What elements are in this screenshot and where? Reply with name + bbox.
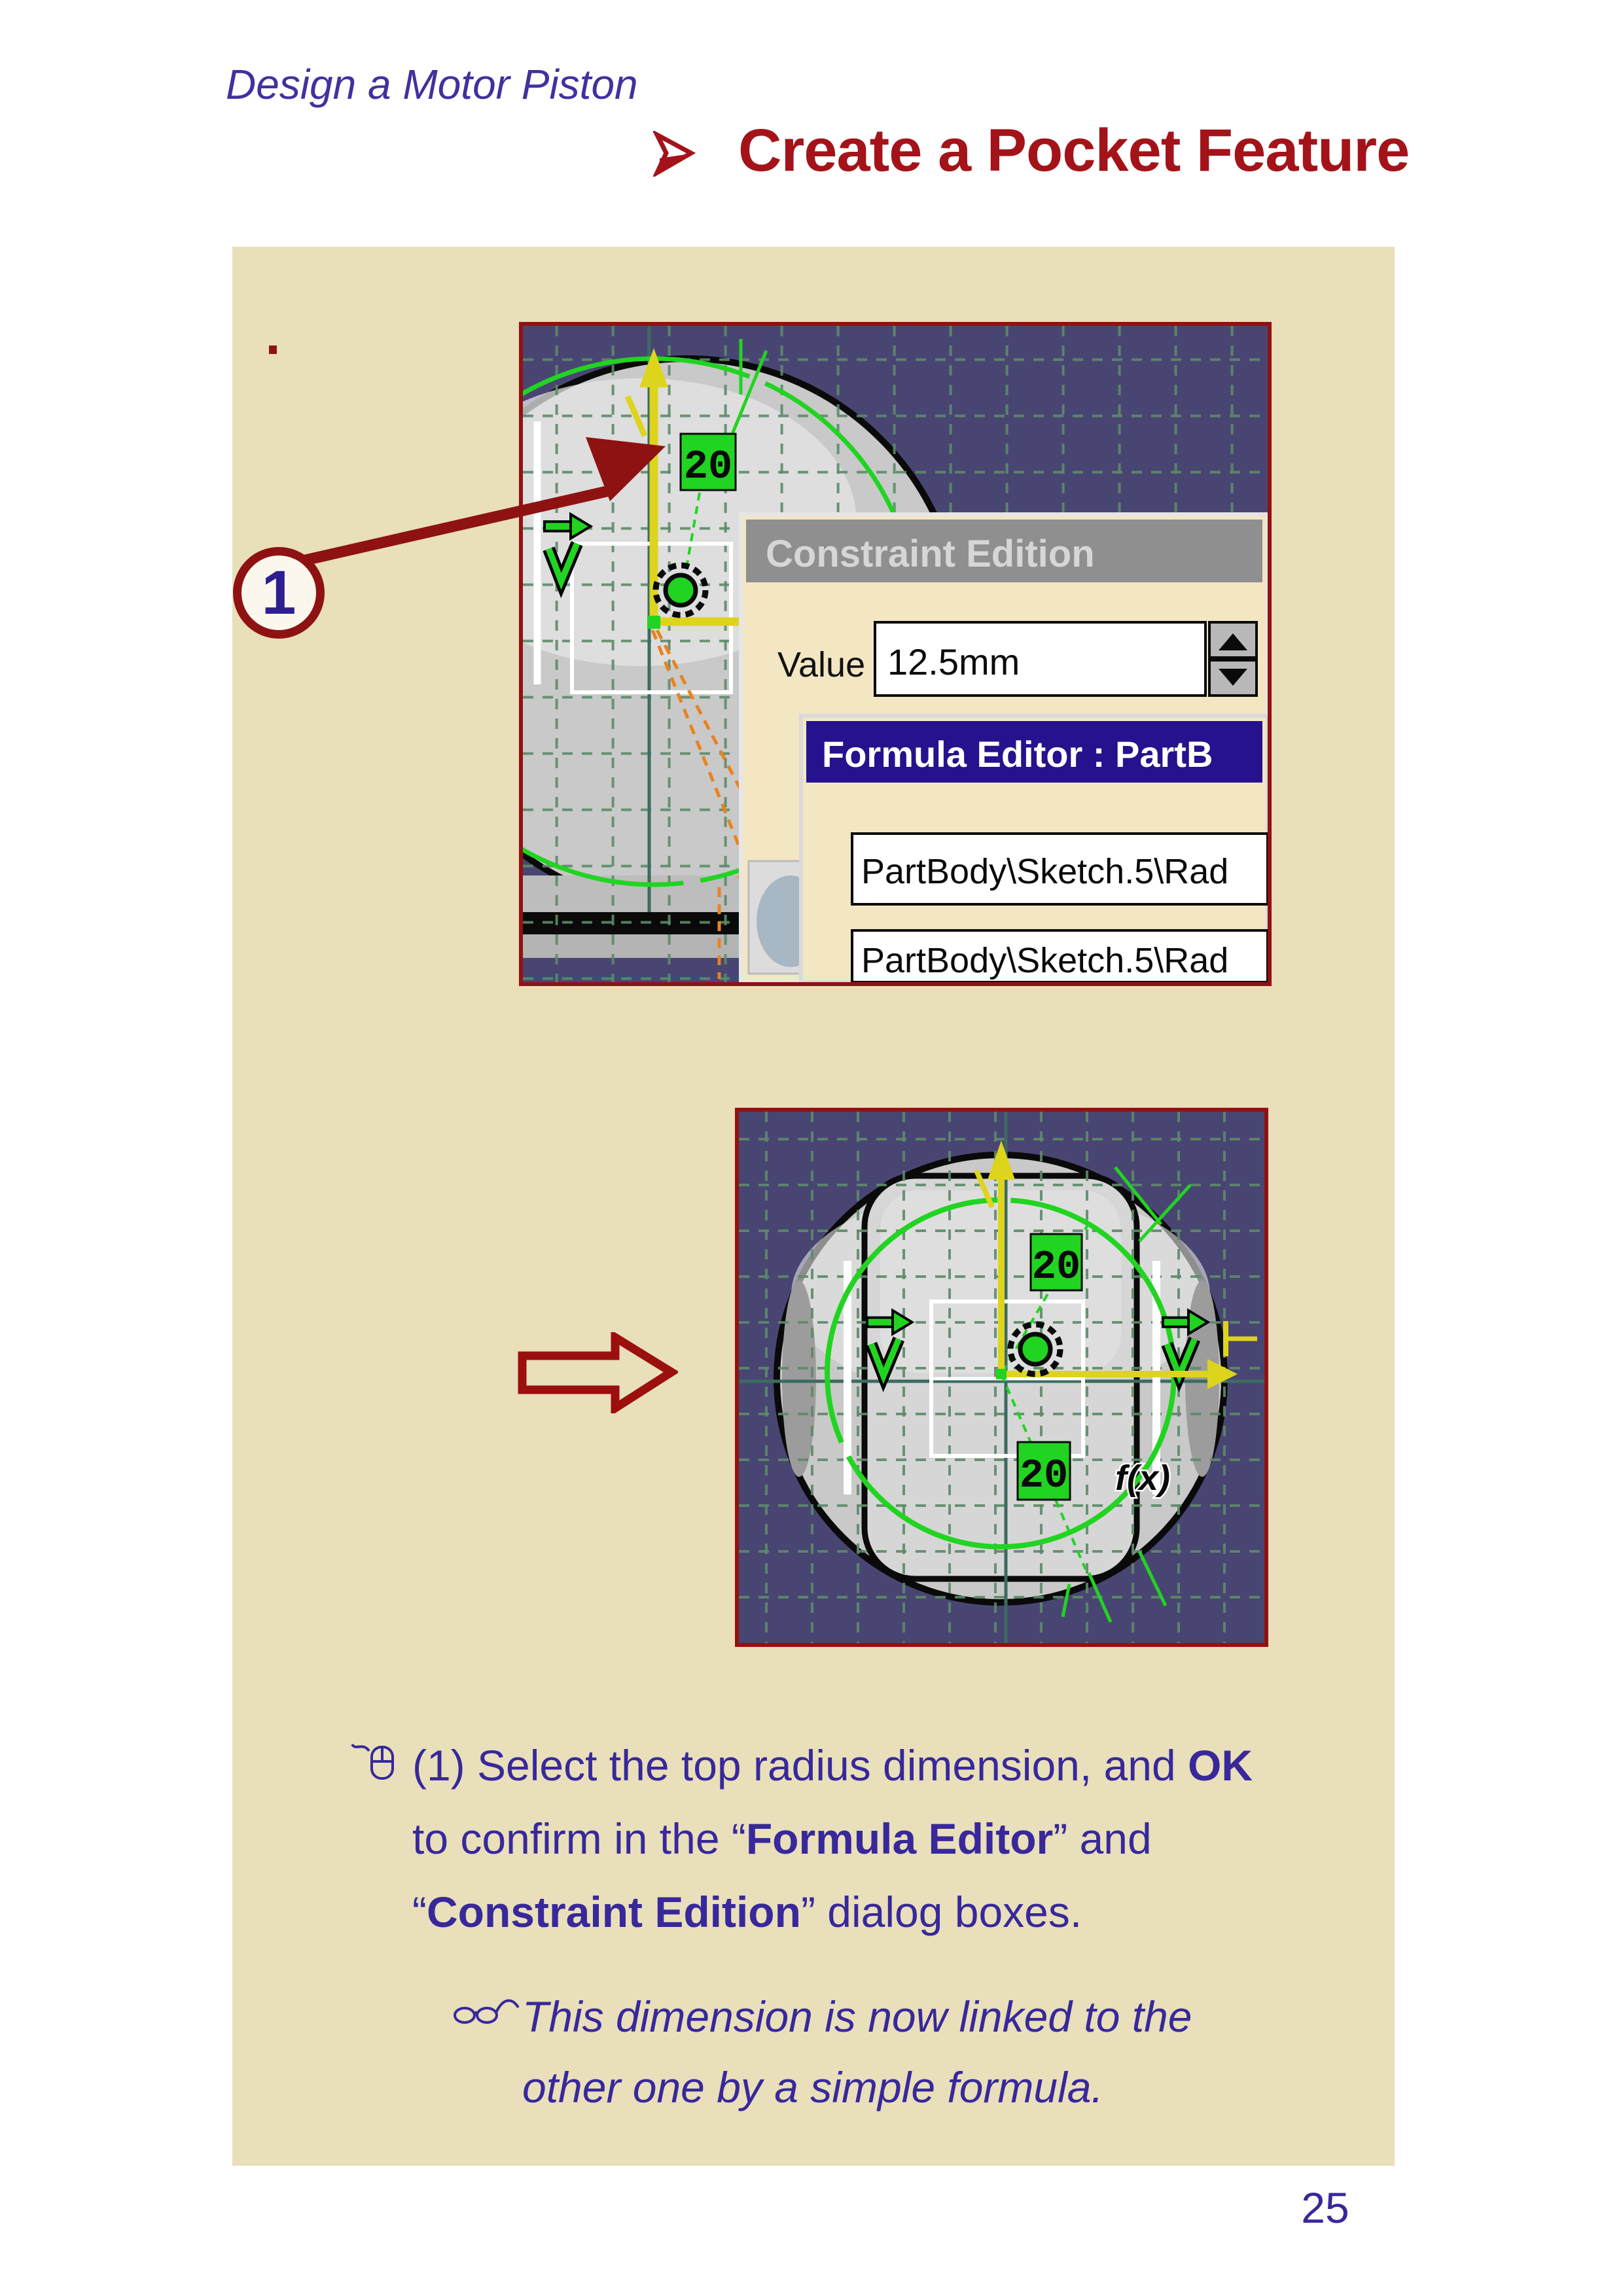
step-text-bold: Constraint Edition <box>427 1888 801 1936</box>
step-text-bold: Formula Editor <box>746 1814 1053 1863</box>
note-line: This dimension is now linked to the <box>522 1992 1192 2041</box>
radius-dimension-chip-bottom: 20 <box>1018 1442 1070 1500</box>
value-input-text: 12.5mm <box>887 641 1020 682</box>
svg-text:20: 20 <box>1020 1453 1068 1499</box>
arrowhead-bullet-icon <box>653 131 696 177</box>
callout-arrow <box>288 419 694 589</box>
callout-1-badge: 1 <box>233 547 325 639</box>
cad-scene-result: 20 20 f(x) <box>739 1112 1264 1643</box>
step-text-part: ” dialog boxes. <box>801 1888 1082 1936</box>
instruction-note: This dimension is now linked to the othe… <box>522 1981 1360 2123</box>
result-arrow-icon <box>517 1332 678 1413</box>
formula-field-1-text: PartBody\Sketch.5\Rad <box>861 852 1228 891</box>
dialog-title: Formula Editor : PartB <box>822 733 1213 775</box>
note-line: other one by a simple formula. <box>522 2063 1103 2111</box>
formula-field-2-text: PartBody\Sketch.5\Rad <box>861 941 1228 980</box>
step-text-bold: OK <box>1188 1741 1253 1790</box>
step-text-part: ” and <box>1053 1814 1151 1863</box>
mouse-click-icon <box>349 1738 399 1784</box>
document-title: Design a Motor Piston <box>226 60 638 109</box>
page-number: 25 <box>1283 2183 1368 2233</box>
dialog-title: Constraint Edition <box>766 533 1095 575</box>
value-label: Value <box>777 645 865 684</box>
instruction-step: (1) Select the top radius dimension, and… <box>412 1729 1394 1949</box>
value-spinner <box>1209 622 1257 696</box>
svg-text:20: 20 <box>1032 1244 1080 1290</box>
cad-screenshot-result: 20 20 f(x) <box>735 1108 1268 1647</box>
constraint-edition-dialog: Constraint Edition Value 12.5mm Formula … <box>741 514 1268 982</box>
note-glasses-icon <box>453 1992 521 2027</box>
tutorial-page: Design a Motor Piston Create a Pocket Fe… <box>0 0 1623 2296</box>
step-text-part: to confirm in the “ <box>412 1814 746 1863</box>
step-text-part: “ <box>412 1888 427 1936</box>
page-title: Create a Pocket Feature <box>738 116 1409 185</box>
formula-fx-icon: f(x) <box>1115 1458 1170 1498</box>
formula-editor-dialog: Formula Editor : PartB PartBody\Sketch.5… <box>801 716 1268 982</box>
step-text-part: (1) Select the top radius dimension, and <box>412 1741 1188 1790</box>
stray-dot <box>269 345 277 354</box>
radius-dimension-chip-top: 20 <box>1031 1234 1082 1290</box>
callout-1-number: 1 <box>262 557 296 629</box>
